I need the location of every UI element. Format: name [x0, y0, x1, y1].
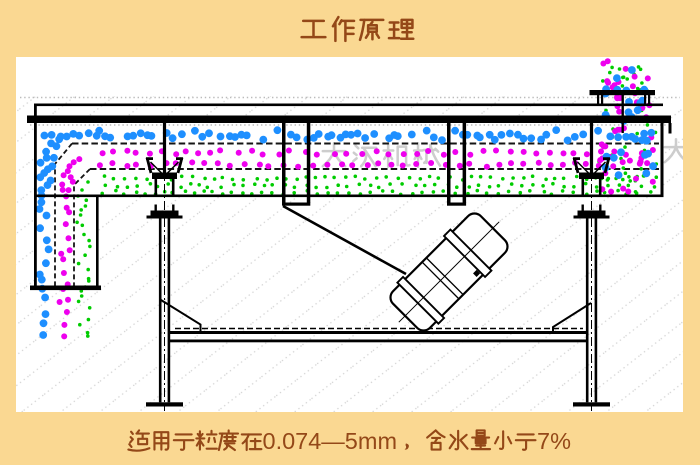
svg-text:7%: 7% — [537, 428, 571, 454]
svg-text:0.074—5mm: 0.074—5mm — [263, 428, 398, 454]
